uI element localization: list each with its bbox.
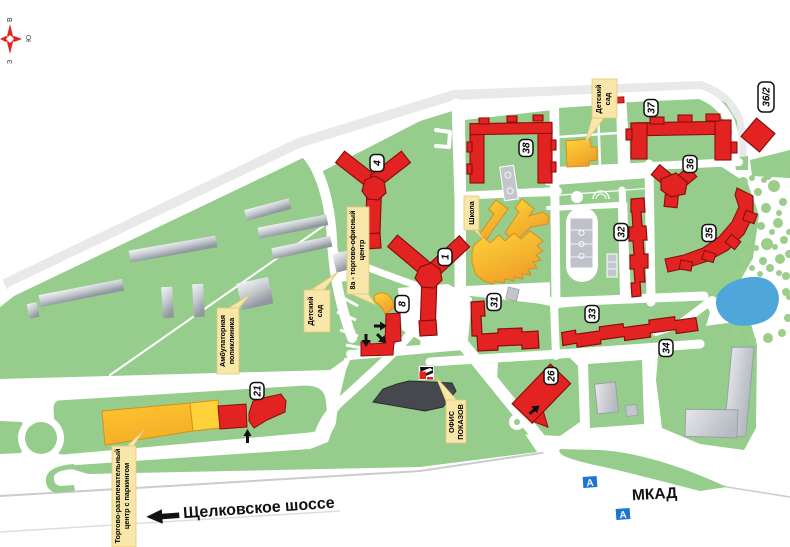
svg-text:Ю: Ю (26, 35, 33, 42)
svg-text:ОФИС: ОФИС (447, 411, 456, 433)
svg-text:поликлиника: поликлиника (227, 317, 236, 365)
svg-text:31: 31 (490, 296, 501, 308)
svg-text:Торгово-развлекательный: Торгово-развлекательный (113, 449, 122, 544)
svg-text:36/2: 36/2 (762, 87, 773, 107)
svg-text:21: 21 (253, 385, 264, 398)
svg-text:34: 34 (662, 342, 673, 354)
svg-text:35: 35 (705, 227, 716, 239)
svg-text:4: 4 (373, 160, 384, 167)
svg-text:8а - торгово-офисный: 8а - торгово-офисный (348, 211, 357, 290)
svg-text:26: 26 (547, 370, 558, 383)
svg-text:1: 1 (441, 254, 452, 260)
svg-text:А: А (619, 510, 627, 521)
svg-text:ПОКАЗОВ: ПОКАЗОВ (456, 404, 465, 440)
svg-text:Школа: Школа (467, 200, 476, 225)
svg-text:МКАД: МКАД (632, 485, 678, 504)
svg-text:В: В (7, 17, 14, 22)
svg-text:сад: сад (603, 92, 612, 105)
svg-text:сад: сад (315, 304, 324, 317)
svg-text:Амбулаторная: Амбулаторная (218, 315, 227, 367)
svg-text:33: 33 (588, 308, 599, 320)
svg-text:Детский: Детский (594, 85, 603, 114)
svg-text:36: 36 (686, 158, 697, 170)
svg-text:Детский: Детский (306, 297, 315, 326)
svg-text:37: 37 (647, 102, 658, 114)
svg-text:8: 8 (398, 301, 409, 307)
svg-text:центр с паркингом: центр с паркингом (122, 463, 131, 529)
svg-text:З: З (7, 60, 14, 64)
svg-text:центр: центр (357, 239, 366, 260)
svg-text:32: 32 (617, 226, 628, 238)
svg-text:38: 38 (522, 142, 533, 154)
svg-text:А: А (586, 478, 594, 489)
